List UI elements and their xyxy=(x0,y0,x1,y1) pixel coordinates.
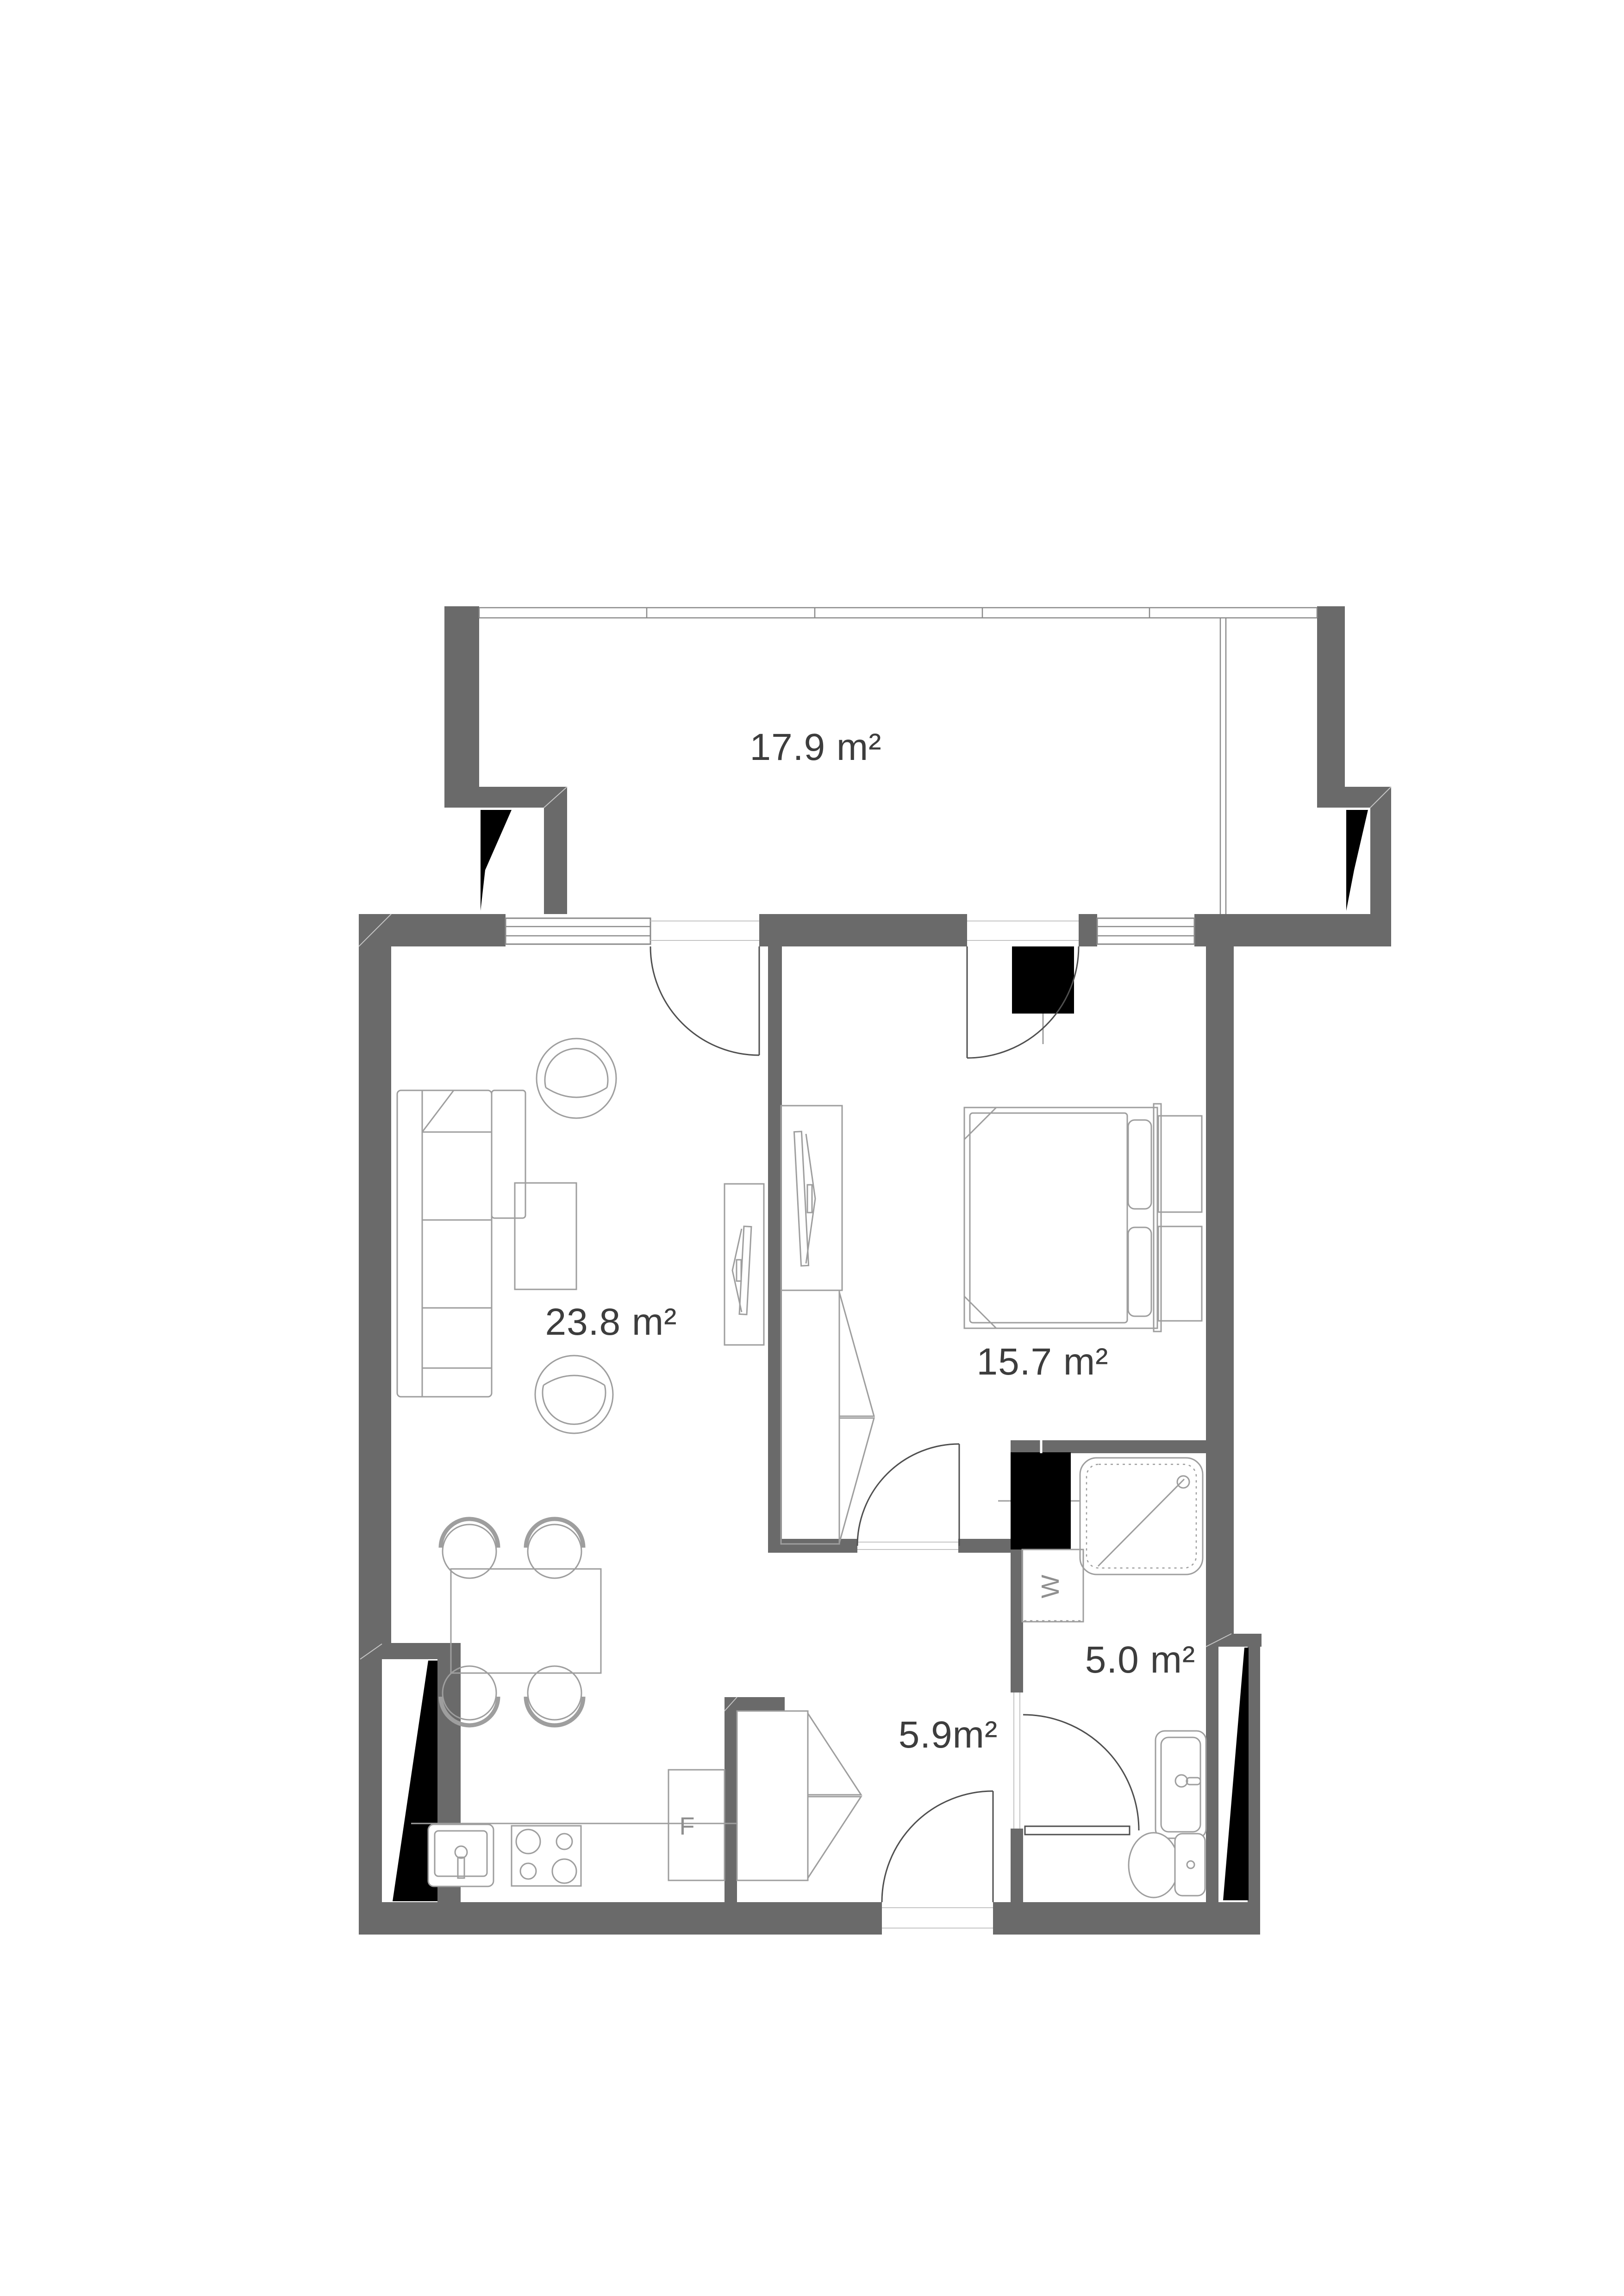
balcony-right-pocket-wall xyxy=(1370,808,1391,914)
left-pocket-left xyxy=(359,1659,382,1935)
kitchen-stub-wall xyxy=(725,1711,737,1902)
living-bedroom-wall xyxy=(768,946,782,1553)
bedroom-door xyxy=(857,1444,959,1549)
dining-table xyxy=(451,1569,601,1673)
armchair-top xyxy=(537,1039,616,1118)
bathroom-left-wall xyxy=(1011,1549,1023,1692)
balcony-right-wall xyxy=(1317,606,1345,808)
wardrobe xyxy=(781,1290,874,1544)
bedroom-window xyxy=(1097,918,1194,944)
shower xyxy=(1080,1458,1203,1574)
living-room-window xyxy=(506,918,650,944)
right-pocket-top xyxy=(1206,1634,1262,1647)
armchair-bottom xyxy=(535,1356,613,1433)
tv-console-living xyxy=(725,1184,764,1345)
bathroom-area-label: 5.0 m² xyxy=(1085,1639,1195,1681)
hallway-area-label: 5.9m² xyxy=(899,1714,998,1756)
stove xyxy=(512,1826,581,1886)
balcony-right-shade xyxy=(1346,810,1368,911)
floor-plan-page: 17.9 m² 23.8 m² 15.7 m² 5.0 m² 5.9m² F W xyxy=(0,0,1624,2296)
entrance-door xyxy=(882,1791,993,1928)
bottom-wall-segment xyxy=(359,1902,882,1935)
walls xyxy=(359,606,1391,1935)
bedroom-bottom-wall xyxy=(958,1539,1011,1553)
top-wall-segment xyxy=(1194,914,1391,946)
balcony-left-pocket-wall xyxy=(544,808,567,914)
balcony-left-shade xyxy=(481,810,512,911)
top-wall-segment xyxy=(759,914,967,946)
left-pocket-top xyxy=(359,1643,461,1659)
bathroom-shaft xyxy=(1011,1452,1071,1549)
balcony-right-stub xyxy=(1317,787,1391,808)
balcony-left-wall xyxy=(444,606,479,808)
living-balcony-door xyxy=(650,921,759,1055)
bathroom-top-wall xyxy=(1011,1440,1206,1453)
living-room-area-label: 23.8 m² xyxy=(545,1301,677,1343)
right-pocket-right xyxy=(1248,1647,1260,1935)
balcony-railing xyxy=(479,608,1317,914)
hall-cabinet xyxy=(737,1711,861,1880)
washing-machine-label: W xyxy=(1037,1574,1064,1598)
left-wall xyxy=(359,914,391,1659)
bed xyxy=(964,1104,1161,1332)
balcony-area-label: 17.9 m² xyxy=(750,726,882,768)
coffee-table xyxy=(515,1183,576,1289)
bathroom-left-wall xyxy=(1011,1829,1023,1902)
floor-plan-canvas: 17.9 m² 23.8 m² 15.7 m² 5.0 m² 5.9m² F W xyxy=(0,0,1624,2296)
bedroom-shaft xyxy=(1012,946,1074,1014)
bedroom-area-label: 15.7 m² xyxy=(977,1341,1109,1383)
right-wall xyxy=(1206,946,1234,1634)
right-pocket-left xyxy=(1206,1647,1218,1902)
balcony-left-stub xyxy=(444,787,567,808)
sofa xyxy=(397,1090,525,1397)
dining-chair xyxy=(526,1666,583,1725)
fridge-label: F xyxy=(680,1812,695,1840)
bottom-wall-segment xyxy=(993,1902,1260,1935)
tv-console-bedroom xyxy=(781,1106,842,1290)
kitchen-stub-wall xyxy=(725,1697,785,1711)
kitchen-sink xyxy=(428,1824,493,1886)
fridge xyxy=(668,1770,725,1880)
nightstand-top xyxy=(1158,1116,1202,1212)
bottom-right-shade xyxy=(1223,1648,1249,1900)
washbasin xyxy=(1156,1731,1206,1838)
top-wall-segment xyxy=(1079,914,1097,946)
nightstand-bottom xyxy=(1158,1226,1202,1321)
bathroom-door xyxy=(1014,1692,1139,1835)
toilet xyxy=(1129,1833,1205,1898)
